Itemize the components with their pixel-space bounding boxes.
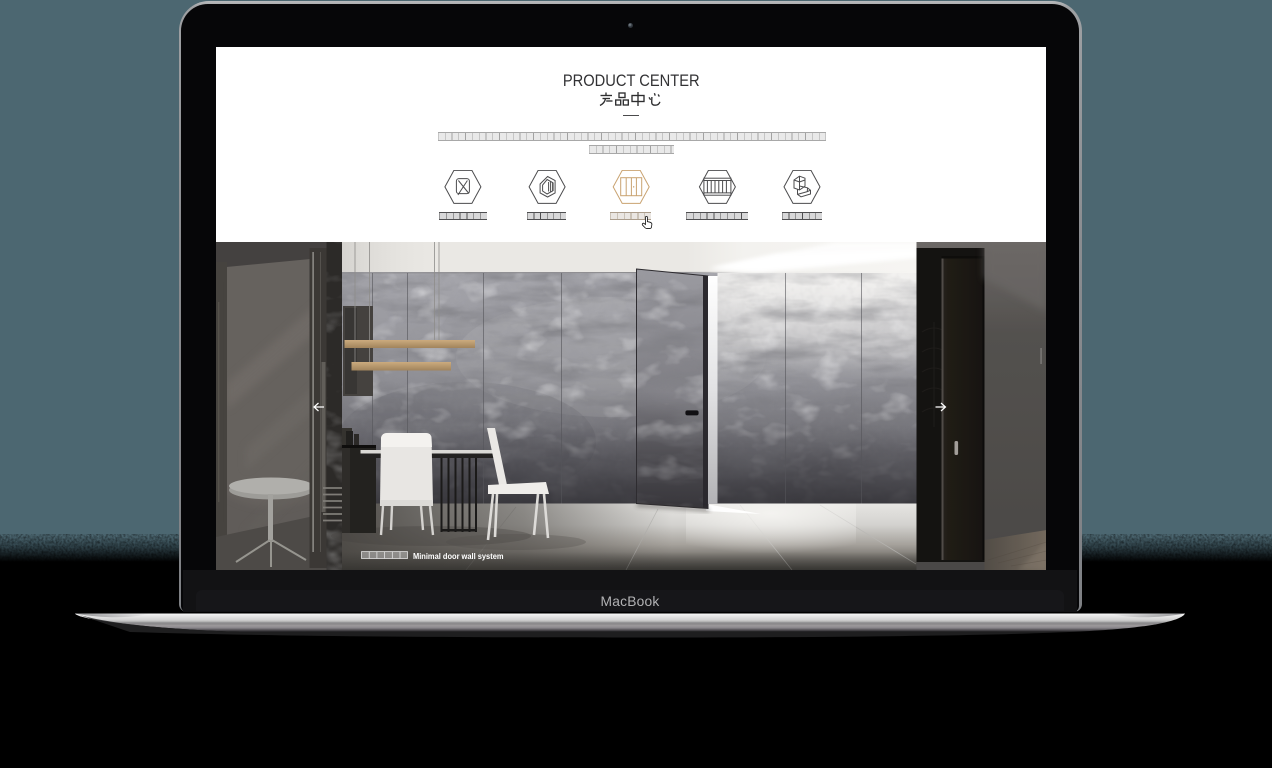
svg-text:Minimal door wall system: Minimal door wall system — [413, 551, 504, 561]
